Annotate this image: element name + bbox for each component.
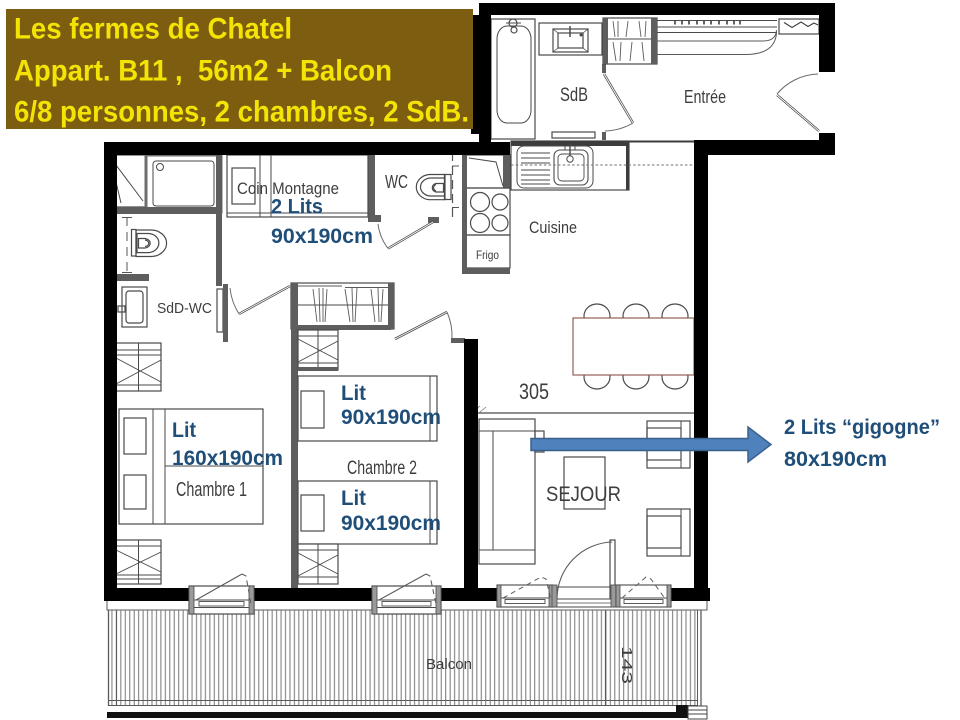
svg-text:SdB: SdB bbox=[560, 85, 588, 106]
svg-text:Frigo: Frigo bbox=[476, 248, 499, 262]
svg-text:2 Lits: 2 Lits bbox=[271, 195, 323, 219]
svg-text:143: 143 bbox=[618, 646, 635, 684]
svg-text:6/8 personnes, 2 chambres, 2 S: 6/8 personnes, 2 chambres, 2 SdB. bbox=[14, 96, 469, 129]
svg-text:Chambre 2: Chambre 2 bbox=[347, 458, 417, 479]
svg-text:Lit: Lit bbox=[341, 486, 366, 510]
svg-text:Les fermes de Chatel: Les fermes de Chatel bbox=[14, 13, 292, 46]
svg-text:SEJOUR: SEJOUR bbox=[546, 483, 621, 506]
svg-text:90x190cm: 90x190cm bbox=[341, 405, 441, 429]
svg-text:160x190cm: 160x190cm bbox=[172, 446, 283, 470]
svg-text:Chambre 1: Chambre 1 bbox=[176, 479, 247, 501]
svg-text:Cuisine: Cuisine bbox=[529, 218, 577, 237]
svg-text:Appart. B11 , 56m2 + Balcon: Appart. B11 , 56m2 + Balcon bbox=[14, 55, 392, 88]
svg-text:Lit: Lit bbox=[172, 418, 196, 442]
svg-text:2 Lits “gigogne”: 2 Lits “gigogne” bbox=[784, 416, 940, 439]
svg-text:90x190cm: 90x190cm bbox=[341, 511, 441, 535]
svg-text:80x190cm: 80x190cm bbox=[784, 448, 887, 471]
svg-text:Entrée: Entrée bbox=[684, 87, 726, 107]
svg-text:90x190cm: 90x190cm bbox=[271, 224, 373, 248]
svg-text:Lit: Lit bbox=[341, 381, 366, 405]
svg-text:SdD-WC: SdD-WC bbox=[157, 300, 212, 317]
svg-text:Balcon: Balcon bbox=[426, 656, 472, 673]
svg-text:WC: WC bbox=[385, 172, 408, 192]
svg-text:305: 305 bbox=[519, 379, 549, 404]
